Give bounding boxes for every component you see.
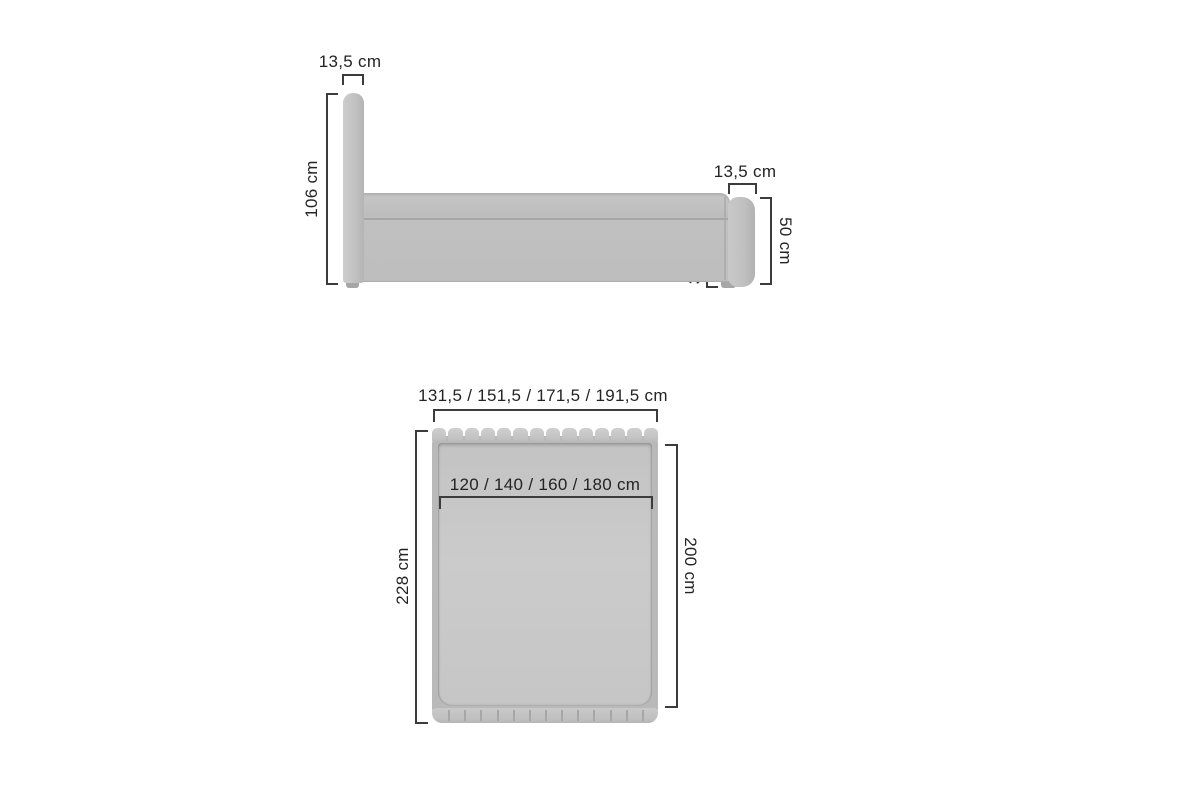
- dimension-line: [342, 74, 364, 76]
- footboard-tuft-divider: [513, 710, 515, 721]
- dimension-tick: [760, 283, 772, 285]
- topview-headboard-band: [432, 428, 658, 443]
- dimension-tick: [755, 183, 757, 194]
- dimension-tick: [665, 444, 678, 446]
- dimension-tick: [439, 496, 441, 509]
- overall-width-label: 131,5 / 151,5 / 171,5 / 191,5 cm: [413, 386, 673, 406]
- headboard-tuft-segment: [513, 428, 527, 443]
- dimension-line: [326, 93, 328, 285]
- footboard-tuft-divider: [642, 710, 644, 721]
- headboard-tuft-segment: [530, 428, 544, 443]
- dimension-tick: [433, 409, 435, 422]
- headboard-tuft-segment: [627, 428, 641, 443]
- base-end-seam: [724, 197, 726, 280]
- mattress-length-label: 200 cm: [680, 526, 700, 606]
- bed-base: [358, 193, 730, 282]
- headboard-tuft-segment: [595, 428, 609, 443]
- topview-footboard-band: [432, 708, 658, 723]
- dimension-tick: [415, 430, 428, 432]
- headboard-height-label: 106 cm: [302, 149, 322, 229]
- footboard-thickness-label: 13,5 cm: [705, 162, 785, 182]
- dimension-line: [728, 183, 757, 185]
- footboard-tuft-divider: [545, 710, 547, 721]
- footboard-tuft-divider: [593, 710, 595, 721]
- dimension-line: [676, 444, 678, 708]
- overall-length-label: 228 cm: [393, 536, 413, 616]
- headboard-tuft-segment: [546, 428, 560, 443]
- headboard-tuft-segment: [644, 428, 658, 443]
- dimension-tick: [326, 93, 338, 95]
- headboard-tuft-segment: [481, 428, 495, 443]
- footboard-tuft-divider: [577, 710, 579, 721]
- headboard-tuft-segment: [432, 428, 446, 443]
- dimension-line: [433, 409, 658, 411]
- headboard-tuft-segment: [497, 428, 511, 443]
- headboard-thickness-label: 13,5 cm: [310, 52, 390, 72]
- headboard-tuft-segment: [579, 428, 593, 443]
- headboard-tuft-segment: [465, 428, 479, 443]
- dimension-tick: [651, 496, 653, 509]
- mattress-width-label: 120 / 140 / 160 / 180 cm: [425, 475, 665, 495]
- footboard-tuft-divider: [497, 710, 499, 721]
- footboard-tuft-divider: [610, 710, 612, 721]
- dimension-tick: [665, 706, 678, 708]
- footboard-tuft-divider: [561, 710, 563, 721]
- headboard-tuft-segment: [448, 428, 462, 443]
- footboard: [728, 197, 755, 287]
- footboard-tuft-divider: [464, 710, 466, 721]
- dimension-tick: [326, 283, 338, 285]
- dimension-tick: [656, 409, 658, 422]
- dimension-tick: [415, 722, 428, 724]
- dimension-tick: [728, 183, 730, 194]
- headboard: [343, 93, 364, 283]
- headboard-tuft-segment: [611, 428, 625, 443]
- dimension-tick: [362, 74, 364, 85]
- dimension-line: [770, 197, 772, 285]
- headboard-tuft-segment: [562, 428, 576, 443]
- dimension-line: [415, 430, 417, 724]
- dimension-line: [439, 496, 653, 498]
- footboard-height-label: 50 cm: [775, 201, 795, 281]
- dimension-tick: [760, 197, 772, 199]
- footboard-tuft-divider: [480, 710, 482, 721]
- bed-dimensions-diagram: 13,5 cm 106 cm 13,5 cm 50 cm: [0, 0, 1200, 800]
- dimension-tick: [342, 74, 344, 85]
- mattress-seam-line: [360, 218, 728, 220]
- footboard-tuft-divider: [529, 710, 531, 721]
- dimension-tick: [706, 286, 718, 288]
- footboard-tuft-divider: [448, 710, 450, 721]
- footboard-tuft-divider: [626, 710, 628, 721]
